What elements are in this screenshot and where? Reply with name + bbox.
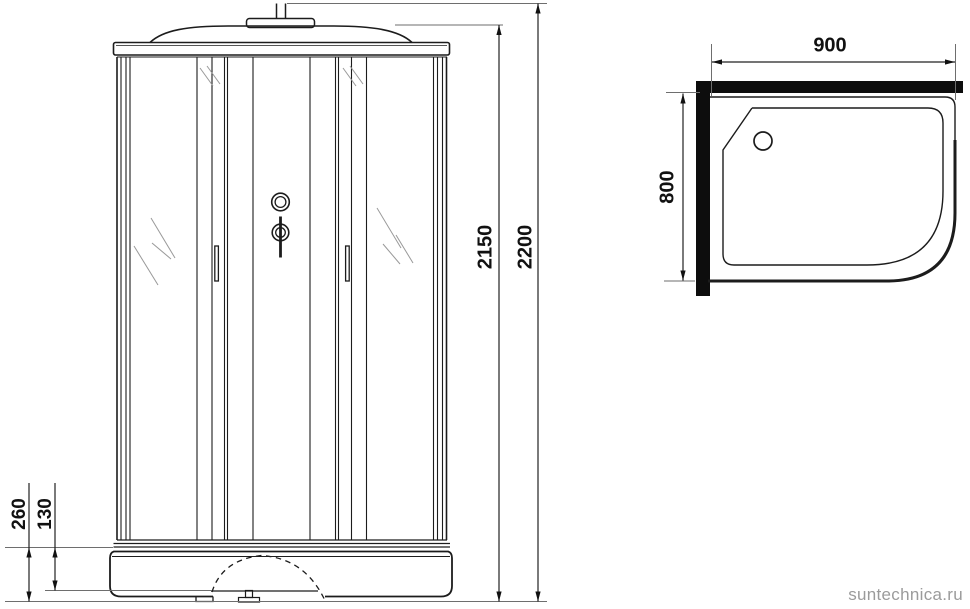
side-wall [696, 81, 710, 296]
reference-lines [5, 4, 956, 602]
faucet-controls [272, 193, 290, 257]
front-view [110, 4, 452, 603]
left-door-handle [215, 246, 219, 281]
walls [696, 81, 963, 296]
drain-access-arc [212, 556, 325, 601]
drain-hole [754, 132, 772, 150]
roof-cornice [114, 43, 450, 58]
bottom-rail [114, 540, 451, 547]
dimension-label-cabin-height: 2150 [475, 225, 498, 270]
top-view [696, 81, 963, 296]
back-wall [696, 81, 963, 93]
drain-foot [239, 591, 260, 603]
dimension-label-tray-width: 900 [813, 35, 846, 58]
shower-tray-front [110, 552, 452, 603]
tray-outer-top [710, 97, 955, 142]
tray-inner-rim [723, 108, 943, 265]
site-watermark: suntechnica.ru [848, 585, 963, 605]
dimension-label-tray-height: 260 [9, 498, 31, 530]
dimension-label-tray-depth: 800 [657, 170, 680, 203]
dimension-label-tray-step: 130 [35, 498, 57, 530]
door-handles [215, 246, 349, 281]
tray-outer-curve [708, 140, 955, 281]
dimension-label-overall-height: 2200 [515, 225, 538, 270]
frame-and-glass-dividers [117, 57, 447, 540]
glass-reflection-hatches [134, 66, 413, 285]
dimension-lines [29, 4, 955, 602]
dimension-arrows [26, 4, 955, 602]
right-door-handle [346, 246, 350, 281]
roof-dome [150, 26, 412, 43]
shower-cabin-technical-drawing: 2150 2200 260 130 900 800 suntechnica.ru [0, 0, 970, 609]
drawing-linework [0, 0, 970, 609]
roof-pipe [247, 4, 315, 28]
